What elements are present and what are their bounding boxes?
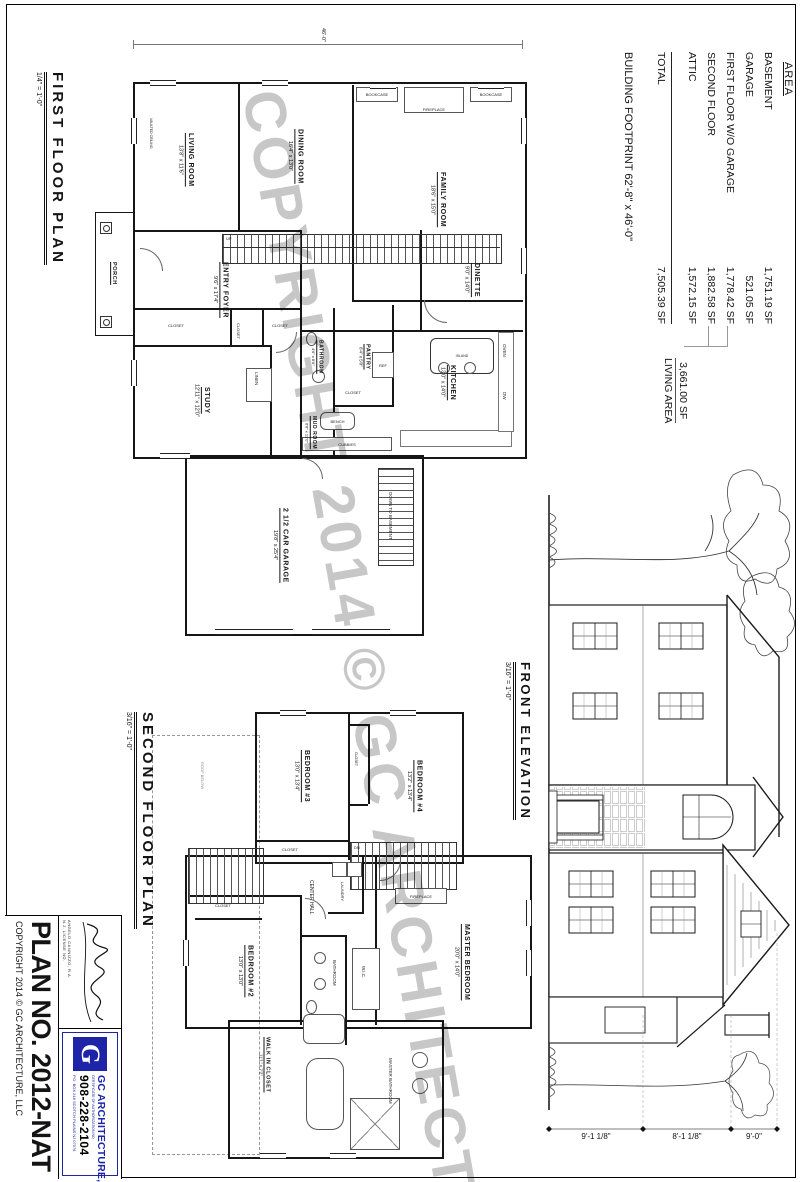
- plan-sheet: 46'-0" UP DOWN TO BASEMENT BOOKCASE BOOK…: [0, 0, 800, 1182]
- table-row: FIRST FLOOR W/O GARAGE1,778.42 SF: [724, 52, 736, 324]
- closet-label: CLOSET: [354, 752, 358, 766]
- window: [260, 1153, 286, 1159]
- window: [183, 940, 189, 966]
- fireplace: FIREPLACE: [395, 888, 447, 904]
- window: [150, 80, 176, 86]
- first-floor-title: FIRST FLOOR PLAN 1/4" = 1'-0": [22, 72, 66, 322]
- sink: [412, 1078, 428, 1094]
- shower: [350, 1098, 400, 1150]
- elev-dim-3: 9'-0": [746, 1132, 762, 1141]
- sink: [412, 1052, 428, 1068]
- title-block: ANGELO CANNIZZO, R.A. N.J. LICENSE NO. G…: [6, 915, 122, 1178]
- signature-icon: [77, 916, 121, 1026]
- table-row: ATTIC1,572.15 SF: [686, 52, 698, 324]
- room-bedroom4: BEDROOM #413'2" x 13'4": [368, 712, 460, 860]
- stairs: [188, 848, 264, 904]
- wic-label: W.I.C.: [361, 966, 366, 978]
- living-area-note: 3,661.00 SF LIVING AREA: [661, 358, 690, 423]
- firm-name: GC ARCHITECTURE, LLC: [96, 1075, 108, 1182]
- bracket-line: [684, 346, 718, 347]
- window: [131, 360, 137, 386]
- table-row: BASEMENT1,751.19 SF: [762, 52, 774, 324]
- wic-closet: [352, 948, 380, 1010]
- window: [526, 950, 532, 976]
- wall: [300, 935, 345, 937]
- window: [526, 900, 532, 926]
- toilet: [306, 1000, 317, 1014]
- room-bedroom3: BEDROOM #313'0" x 13'4": [255, 712, 348, 840]
- garage-door: [312, 629, 390, 635]
- front-elevation-drawing: 9'-1 1/8" 8'-1 1/8" 9'-0": [535, 455, 795, 1170]
- laundry-label: LAUNDRY: [340, 882, 345, 901]
- wall: [300, 895, 302, 1025]
- architect-signature-block: ANGELO CANNIZZO, R.A. N.J. LICENSE NO.: [59, 916, 121, 1029]
- wall: [348, 804, 368, 806]
- soaking-tub: [306, 1058, 344, 1130]
- roof-below-label: ROOF BELOW: [200, 762, 205, 789]
- room-master-bedroom: MASTER BEDROOM20'0" x 14'0": [395, 905, 528, 1020]
- master-bath-label: MASTER BATHROOM: [388, 1058, 393, 1104]
- wall: [348, 724, 368, 726]
- window: [262, 80, 288, 86]
- firm-phone: 908-228-2104: [78, 1075, 92, 1182]
- elev-dim-2: 8'-1 1/8": [672, 1132, 701, 1141]
- stairs-dn-label: DN: [354, 845, 360, 850]
- front-elevation-title: FRONT ELEVATION 3/16" = 1'-0": [492, 662, 534, 854]
- firm-logo-block: G GC ARCHITECTURE, LLC CERTIFICATE OF AU…: [59, 1029, 121, 1179]
- wall: [348, 712, 350, 860]
- elevation-svg: 9'-1 1/8" 8'-1 1/8" 9'-0": [535, 455, 795, 1170]
- window: [131, 118, 137, 144]
- window: [160, 453, 190, 459]
- sink: [314, 952, 326, 964]
- bathroom-label: BATHROOM: [332, 960, 337, 986]
- garage-door: [215, 629, 293, 635]
- wall: [362, 855, 364, 912]
- room-walkin-closet: WALK IN CLOSET11'1" x 7'2": [228, 1020, 300, 1110]
- table-row: SECOND FLOOR1,882.58 SF: [705, 52, 717, 324]
- plan-number: PLAN NO. 2012-NAT: [25, 921, 56, 1174]
- bathtub: [303, 1014, 345, 1044]
- elev-dim-1: 9'-1 1/8": [581, 1132, 610, 1141]
- copyright-line: COPYRIGHT 2014 © GC ARCHITECTURE, LLC: [14, 921, 24, 1174]
- area-table: AREA BASEMENT1,751.19 SF GARAGE521.05 SF…: [598, 40, 794, 460]
- sink: [314, 978, 326, 990]
- wall: [328, 912, 364, 914]
- firm-address: P.O. BOX 218 SCOTCH PLAINS NJ 07076: [73, 1075, 78, 1182]
- window: [370, 83, 396, 89]
- wall: [345, 935, 347, 1045]
- area-table-header: AREA: [782, 62, 794, 96]
- wall: [255, 840, 348, 842]
- gc-logo-icon: G: [73, 1037, 107, 1071]
- bracket-line: [727, 326, 728, 346]
- bracket-line: [708, 326, 709, 346]
- table-row: GARAGE521.05 SF: [743, 52, 755, 324]
- table-total-row: TOTAL7,505.39 SF: [655, 52, 672, 324]
- window: [390, 710, 416, 716]
- building-footprint: BUILDING FOOTPRINT 62'-8" x 46'-0": [622, 52, 634, 241]
- window: [280, 710, 306, 716]
- dryer: [347, 862, 362, 877]
- window: [521, 248, 527, 274]
- room-bedroom2: BEDROOM #213'0" x 13'0": [190, 918, 300, 1025]
- window: [521, 118, 527, 144]
- washer: [332, 862, 347, 877]
- architect-name: ANGELO CANNIZZO, R.A. N.J. LICENSE NO.: [61, 920, 72, 979]
- closet-label: CLOSET: [282, 847, 298, 852]
- window: [330, 1153, 356, 1159]
- window: [478, 83, 504, 89]
